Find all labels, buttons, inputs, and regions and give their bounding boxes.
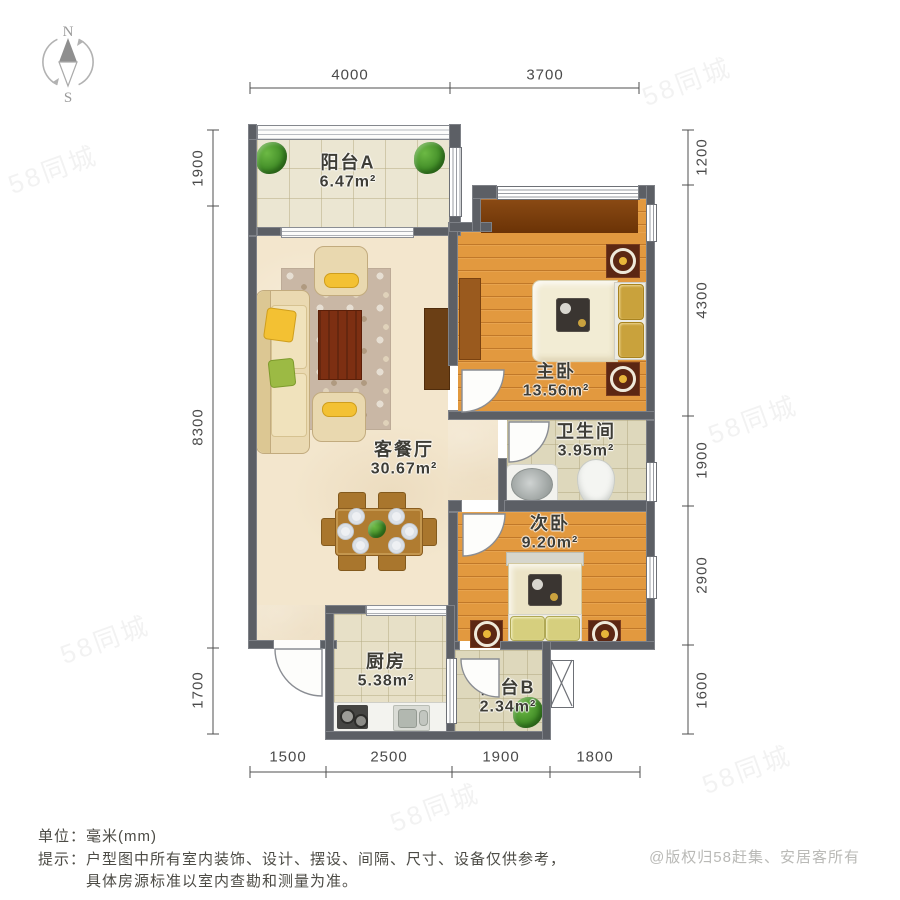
tip-text-2: 具体房源标准以室内查勘和测量为准。 xyxy=(86,873,358,890)
master-door xyxy=(462,370,504,412)
bath-door xyxy=(509,422,549,462)
copyright-text: @版权归58赶集、安居客所有 xyxy=(649,846,860,867)
ac-platform-cross xyxy=(551,660,572,706)
compass-icon: N S xyxy=(43,24,93,106)
door-swings xyxy=(275,370,549,697)
compass-south: S xyxy=(64,90,72,106)
second-door xyxy=(463,514,505,556)
entrance-door xyxy=(275,649,322,696)
unit-label: 单位： xyxy=(38,828,86,845)
unit-note: 单位：毫米(mm) xyxy=(38,825,157,846)
plan-overlay: N S xyxy=(0,0,900,900)
compass-north: N xyxy=(63,24,74,40)
balcony-b-door xyxy=(461,659,499,697)
tip-line-1: 提示：户型图中所有室内装饰、设计、摆设、间隔、尺寸、设备仅供参考， xyxy=(38,848,566,869)
tip-text-1: 户型图中所有室内装饰、设计、摆设、间隔、尺寸、设备仅供参考， xyxy=(86,851,566,868)
tip-label: 提示： xyxy=(38,851,86,868)
unit-value: 毫米(mm) xyxy=(86,828,157,845)
dimension-rulers xyxy=(207,82,694,778)
tip-line-2: 具体房源标准以室内查勘和测量为准。 xyxy=(86,870,358,891)
floor-plan: 58同城 58同城 58同城 58同城 58同城 58同城 xyxy=(0,0,900,900)
